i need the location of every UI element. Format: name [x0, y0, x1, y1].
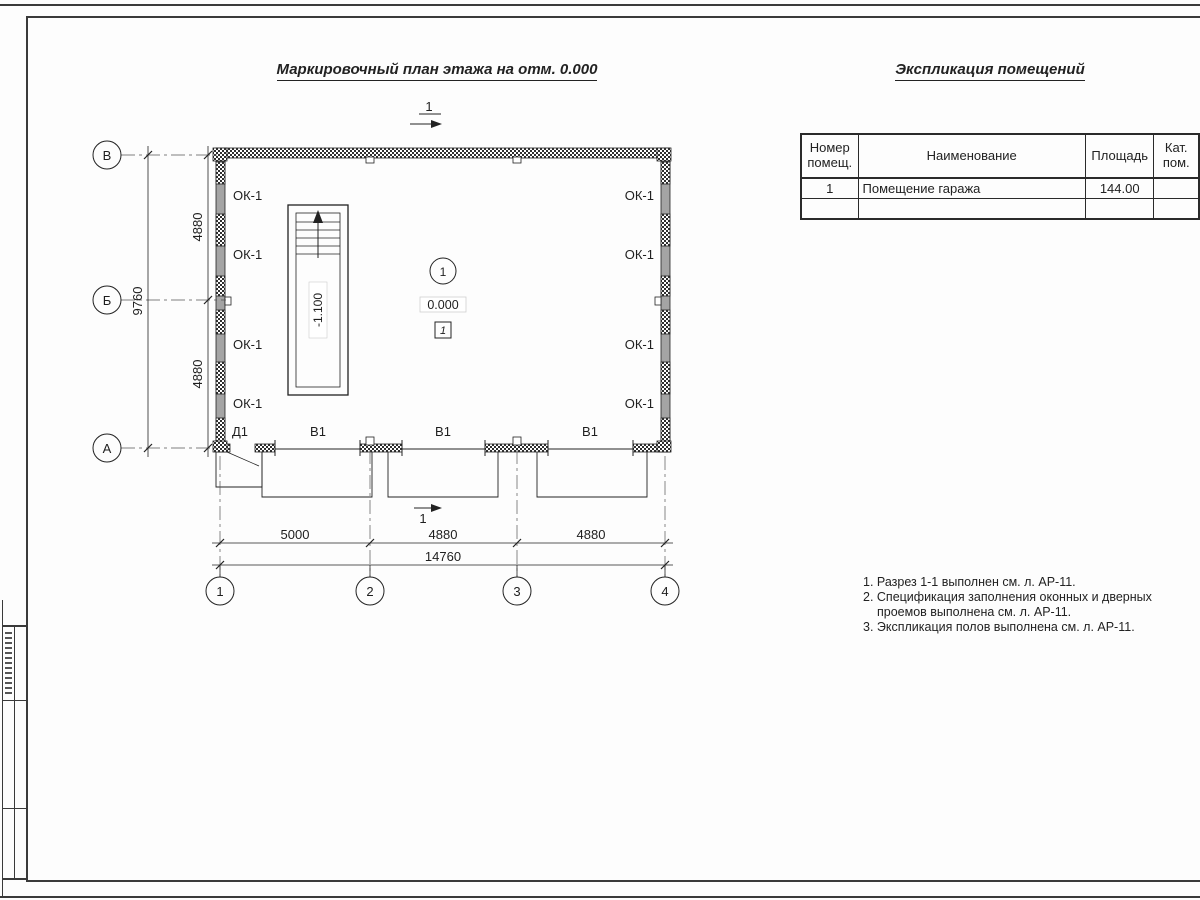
frame-inner-top	[26, 16, 1200, 18]
stamp-divider-2	[2, 700, 28, 701]
room-name-cell: Помещение гаража	[858, 178, 1085, 199]
grid-row-label: В	[103, 148, 112, 163]
stamp-divider-3	[2, 808, 28, 809]
section-mark-top: 1	[410, 99, 442, 128]
section-mark-label: 1	[425, 99, 432, 114]
window-mark-label: ОК-1	[625, 188, 654, 203]
wall-left	[216, 158, 225, 452]
notes-block: 1. Разрез 1-1 выполнен см. л. АР-11. 2. …	[863, 575, 1193, 635]
plan-title: Маркировочный план этажа на отм. 0.000	[237, 61, 637, 81]
pit-arrow-head	[313, 210, 323, 223]
window-mark-label: ОК-1	[233, 188, 262, 203]
drawing-sheet: { "titles": { "plan_title": "Маркировочн…	[0, 0, 1200, 900]
dim-bottom-total: 14760	[425, 549, 461, 564]
section-mark-label: 1	[419, 511, 426, 526]
pit-elevation-label: -1.100	[311, 293, 325, 327]
frame-inner-bottom	[26, 880, 1200, 882]
door-swing	[227, 452, 259, 466]
dim-left-seg2: 4880	[190, 360, 205, 389]
schedule-header-row: Номер помещ. Наименование Площадь Кат. п…	[801, 134, 1199, 178]
plan-title-text: Маркировочный план этажа на отм. 0.000	[277, 61, 598, 81]
window-mark-label: ОК-1	[625, 396, 654, 411]
room-schedule-table: Номер помещ. Наименование Площадь Кат. п…	[800, 133, 1200, 220]
wall-top	[216, 148, 670, 158]
note-line: 2. Спецификация заполнения оконных и две…	[863, 590, 1193, 605]
note-line: 3. Экспликация полов выполнена см. л. АР…	[863, 620, 1193, 635]
dim-ticks	[144, 151, 212, 452]
gate-mark-label: В1	[435, 424, 451, 439]
window-mark-label: ОК-1	[625, 247, 654, 262]
note-line: проемов выполнена см. л. АР-11.	[863, 605, 1193, 620]
sheet-edge-left	[2, 600, 3, 896]
gate-openings	[275, 440, 633, 456]
room-name-cell	[858, 199, 1085, 220]
stamp-divider-1	[2, 625, 28, 627]
window-mark-label: ОК-1	[233, 247, 262, 262]
stamp-column-line	[14, 625, 15, 880]
room-cat-cell	[1154, 199, 1199, 220]
dim-bottom-seg2: 4880	[429, 527, 458, 542]
table-row: 1 Помещение гаража 144.00	[801, 178, 1199, 199]
grid-row-label: Б	[103, 293, 112, 308]
frame-inner-left	[26, 16, 28, 882]
room-area-cell	[1085, 199, 1154, 220]
table-row	[801, 199, 1199, 220]
sheet-edge-top	[0, 4, 1200, 6]
room-number-cell	[801, 199, 858, 220]
floor-plan: -1.100 1 0.000 1 ОК-1 ОК-1 ОК-1 ОК-1 ОК-…	[80, 85, 700, 630]
floor-elevation-label: 0.000	[427, 298, 458, 312]
left-dimensions	[144, 146, 212, 457]
note-line: 1. Разрез 1-1 выполнен см. л. АР-11.	[863, 575, 1193, 590]
dim-bottom-seg3: 4880	[577, 527, 606, 542]
room-number-cell: 1	[801, 178, 858, 199]
schedule-header-cat: Кат. пом.	[1154, 134, 1199, 178]
sheet-edge-bottom	[0, 896, 1200, 898]
stamp-divider-4	[2, 878, 28, 880]
grid-row-label: А	[103, 441, 112, 456]
wall-right	[661, 158, 670, 452]
gate-mark-label: В1	[582, 424, 598, 439]
schedule-header-number: Номер помещ.	[801, 134, 858, 178]
stamp-vertical-text	[5, 632, 12, 694]
grid-col-label: 3	[513, 584, 520, 599]
room-cat-cell	[1154, 178, 1199, 199]
grid-col-label: 2	[366, 584, 373, 599]
grid-col-label: 1	[216, 584, 223, 599]
entrance-ramps	[216, 452, 647, 497]
wall-bottom-piers	[216, 444, 670, 452]
schedule-header-area: Площадь	[1085, 134, 1154, 178]
dim-left-seg1: 4880	[190, 213, 205, 242]
schedule-title: Экспликация помещений	[840, 61, 1140, 81]
gate-mark-label: В1	[310, 424, 326, 439]
floor-type-label: 1	[440, 325, 446, 337]
grid-col-label: 4	[661, 584, 668, 599]
door-mark-label: Д1	[232, 424, 248, 439]
section-mark-bottom: 1	[414, 504, 442, 526]
window-mark-label: ОК-1	[233, 337, 262, 352]
window-mark-label: ОК-1	[625, 337, 654, 352]
dim-left-total: 9760	[130, 287, 145, 316]
schedule-title-text: Экспликация помещений	[895, 61, 1085, 81]
room-number-label: 1	[440, 265, 447, 279]
window-mark-label: ОК-1	[233, 396, 262, 411]
room-area-cell: 144.00	[1085, 178, 1154, 199]
dim-bottom-seg1: 5000	[281, 527, 310, 542]
schedule-header-name: Наименование	[858, 134, 1085, 178]
